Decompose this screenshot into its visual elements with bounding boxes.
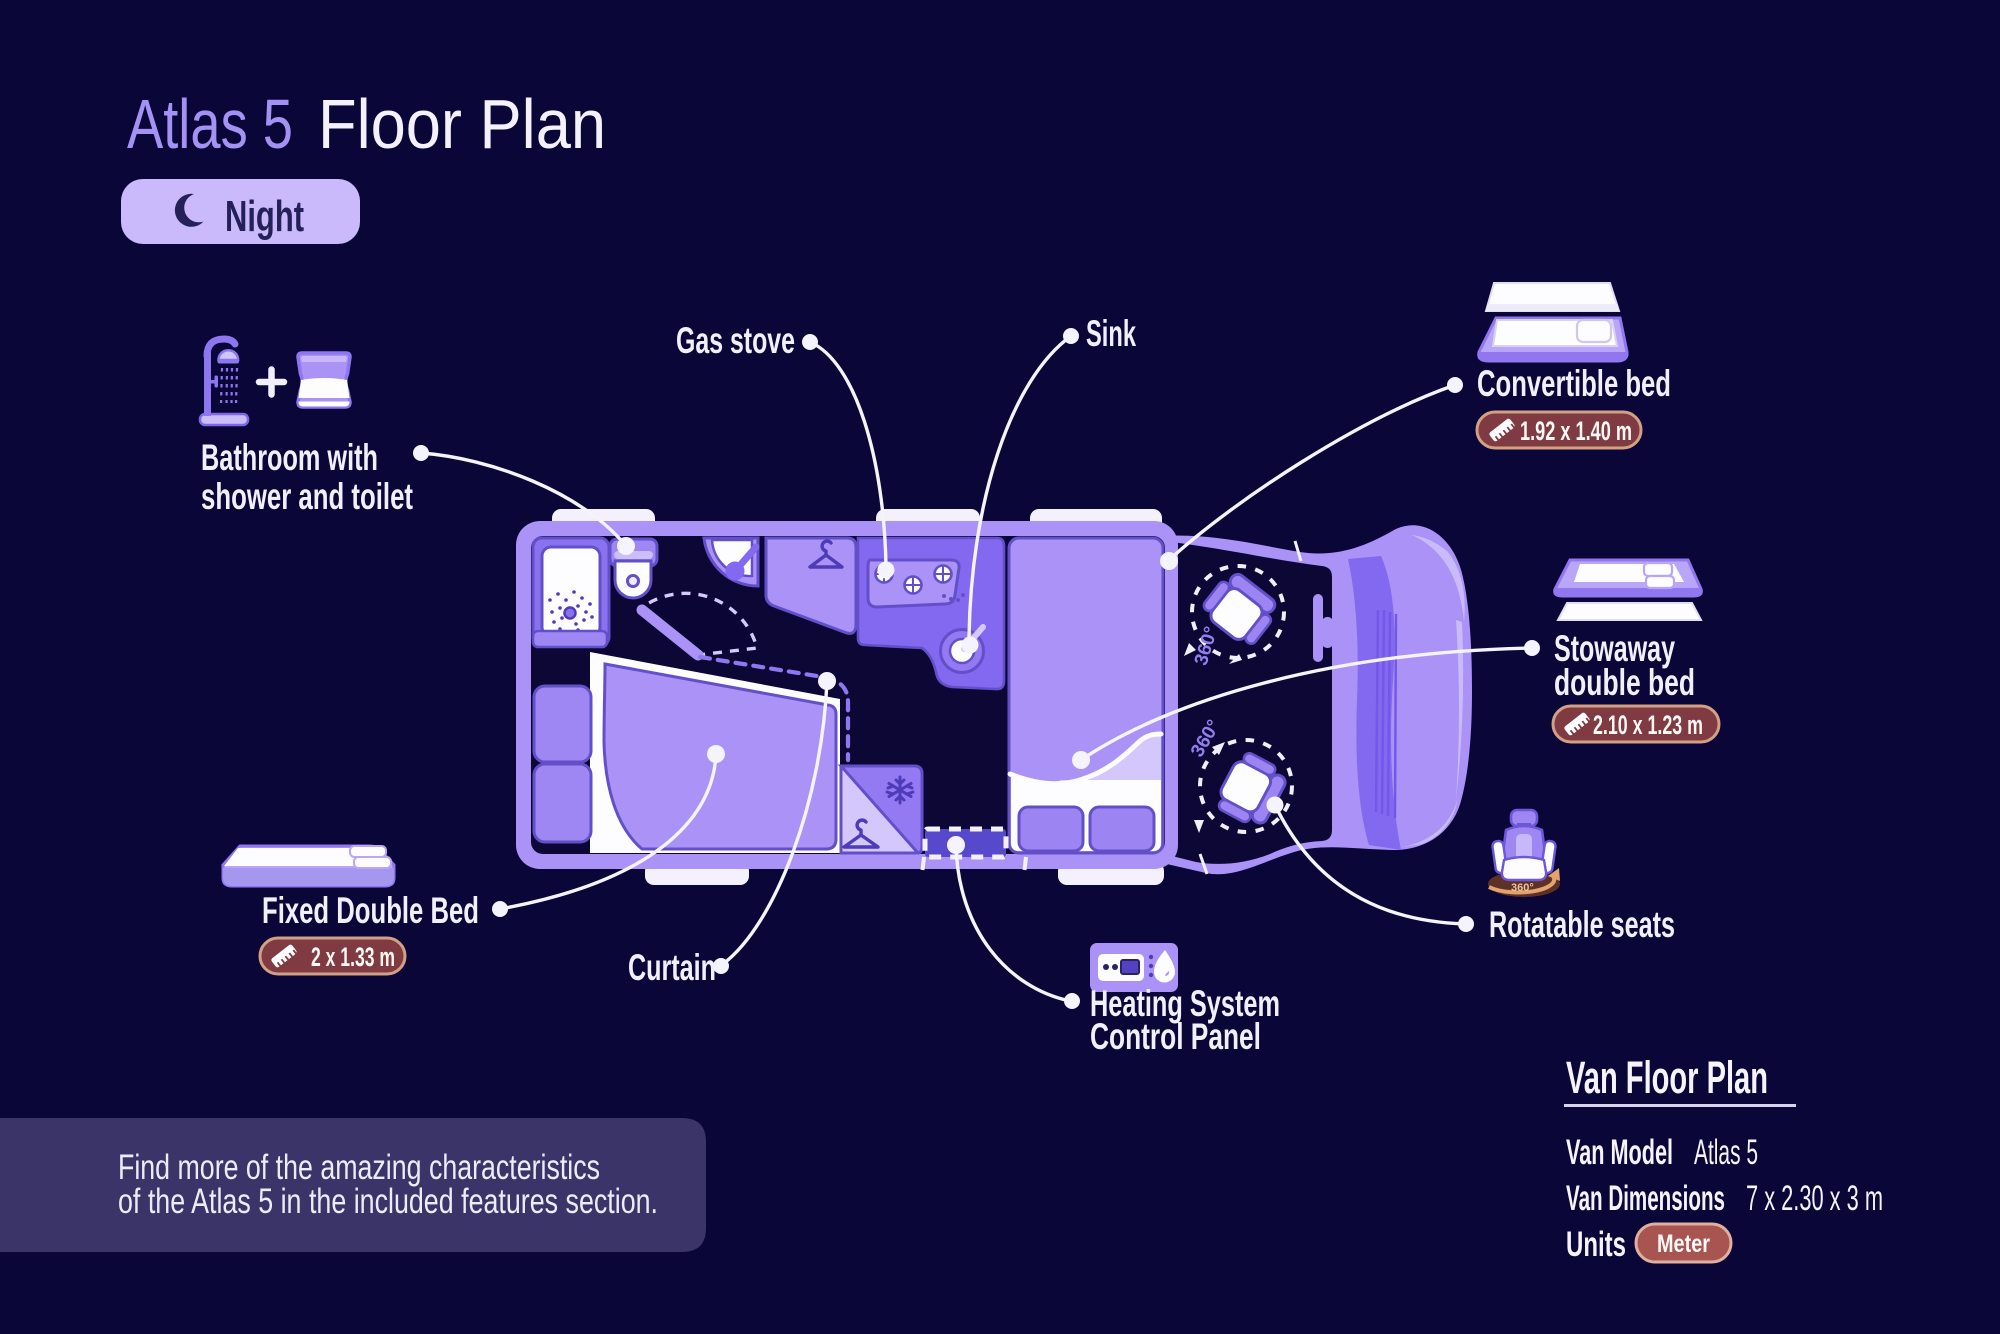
svg-text:Gas stove: Gas stove: [676, 320, 795, 361]
svg-text:Fixed Double Bed: Fixed Double Bed: [262, 890, 479, 931]
svg-text:Van Floor Plan: Van Floor Plan: [1566, 1052, 1768, 1103]
svg-text:2 x 1.33 m: 2 x 1.33 m: [311, 942, 395, 972]
svg-text:Curtain: Curtain: [628, 947, 716, 988]
svg-text:double bed: double bed: [1554, 662, 1695, 703]
svg-text:Atlas 5: Atlas 5: [127, 85, 293, 163]
svg-text:Meter: Meter: [1657, 1230, 1710, 1258]
svg-text:Night: Night: [225, 192, 304, 241]
svg-text:Control Panel: Control Panel: [1090, 1016, 1261, 1057]
svg-text:Van Model: Van Model: [1566, 1133, 1673, 1172]
svg-text:1.92 x 1.40 m: 1.92 x 1.40 m: [1520, 416, 1632, 446]
svg-text:Units: Units: [1566, 1225, 1626, 1264]
svg-text:2.10 x 1.23 m: 2.10 x 1.23 m: [1593, 710, 1703, 740]
svg-text:360°: 360°: [1511, 882, 1534, 894]
svg-text:Sink: Sink: [1086, 313, 1136, 354]
svg-text:of the Atlas 5 in the included: of the Atlas 5 in the included features …: [118, 1182, 658, 1221]
svg-text:Rotatable seats: Rotatable seats: [1489, 904, 1675, 945]
svg-text:Convertible bed: Convertible bed: [1477, 363, 1671, 404]
svg-text:shower and toilet: shower and toilet: [201, 476, 413, 517]
svg-text:Van Dimensions: Van Dimensions: [1566, 1179, 1725, 1218]
svg-text:Atlas 5: Atlas 5: [1694, 1133, 1758, 1172]
svg-text:Floor Plan: Floor Plan: [318, 85, 606, 163]
svg-text:Bathroom with: Bathroom with: [201, 437, 378, 478]
svg-text:7 x 2.30 x 3 m: 7 x 2.30 x 3 m: [1746, 1179, 1883, 1218]
